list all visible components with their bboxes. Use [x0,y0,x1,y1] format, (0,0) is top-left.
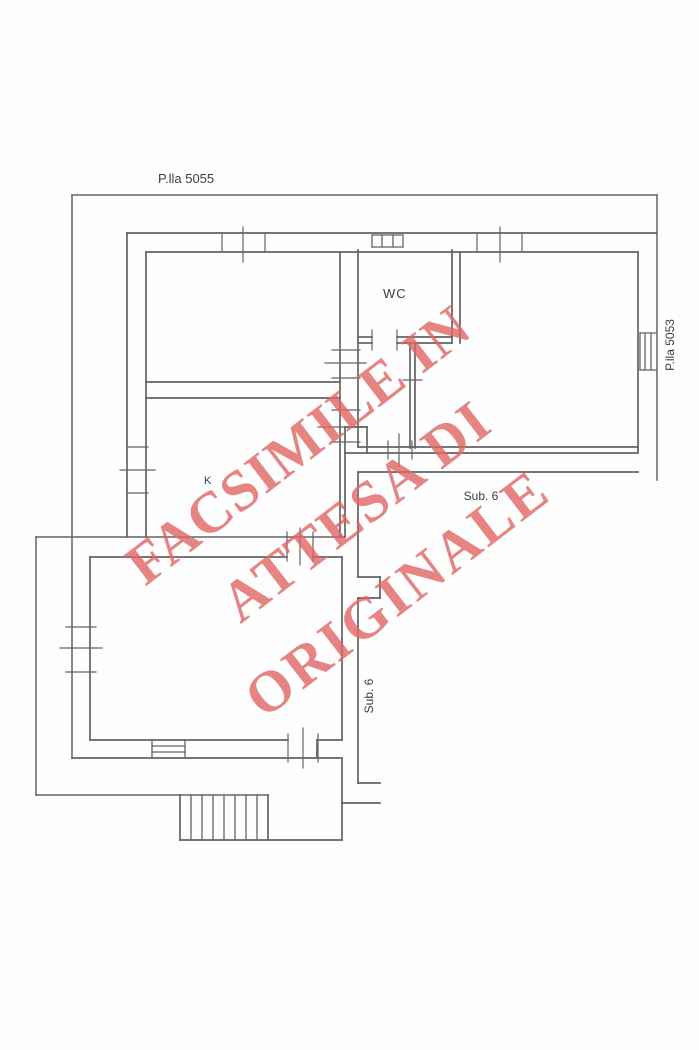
room-label-wc: WC [383,286,407,301]
parcel-label-right: P.lla 5053 [663,319,677,371]
floorplan-canvas: P.lla 5055 P.lla 5053 WC K Sub. 6 Sub. 6… [0,0,699,1050]
floorplan-drawing [0,0,699,1050]
subunit-label-vertical: Sub. 6 [362,679,376,714]
room-label-kitchen: K [204,475,211,487]
parcel-label-top: P.lla 5055 [158,171,214,186]
subunit-label-horizontal: Sub. 6 [464,489,499,503]
